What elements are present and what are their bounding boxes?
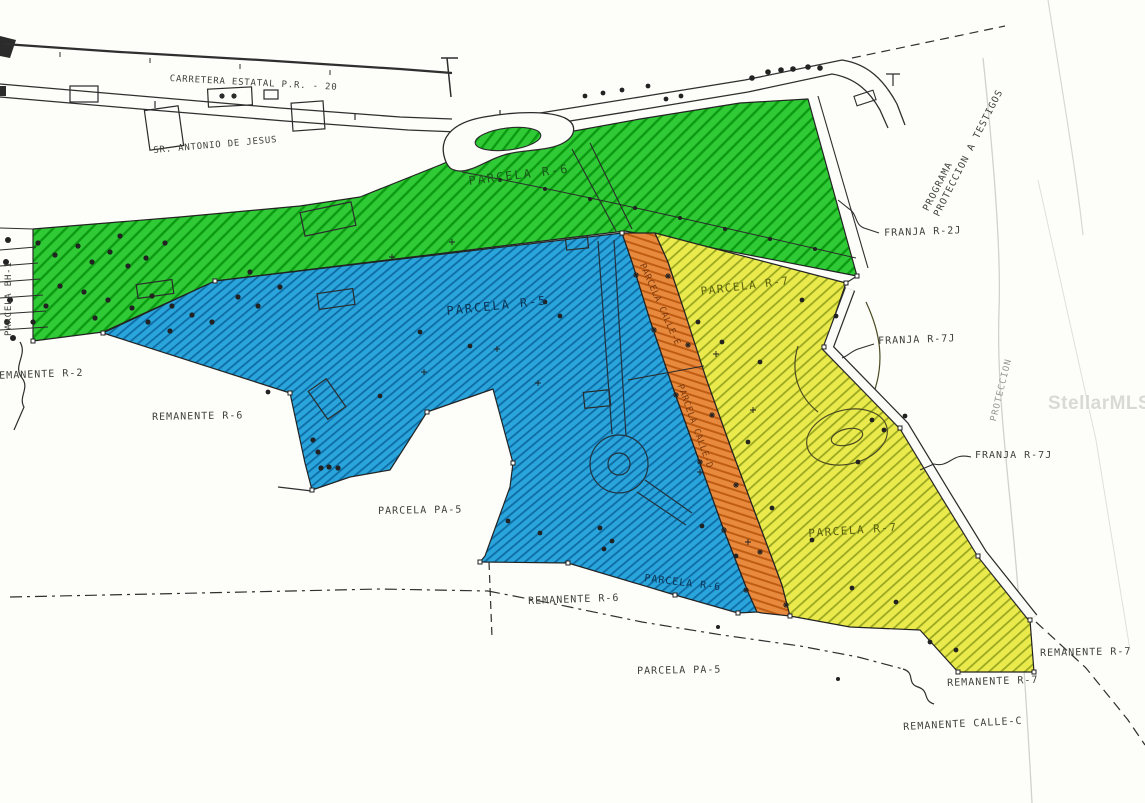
edge-mark bbox=[0, 86, 6, 96]
corner-mark bbox=[0, 36, 16, 58]
stellar-mls-watermark: StellarMLS bbox=[1048, 393, 1145, 415]
franja-r7j-label-mid: FRANJA R-7J bbox=[975, 450, 1052, 461]
remanente-r7-label-right: REMANENTE R-7 bbox=[1040, 646, 1131, 659]
survey-map-page: CARRETERA ESTATAL P.R. - 20 SR. ANTONIO … bbox=[0, 0, 1145, 803]
parcela-pa5-label-bottom: PARCELA PA-5 bbox=[637, 665, 721, 677]
parcela-pa5-label-left: PARCELA PA-5 bbox=[378, 505, 462, 517]
remanente-r6-label-left: REMANENTE R-6 bbox=[152, 410, 243, 423]
parcel-label-bh1: PARCELA BH-1 bbox=[4, 261, 15, 336]
